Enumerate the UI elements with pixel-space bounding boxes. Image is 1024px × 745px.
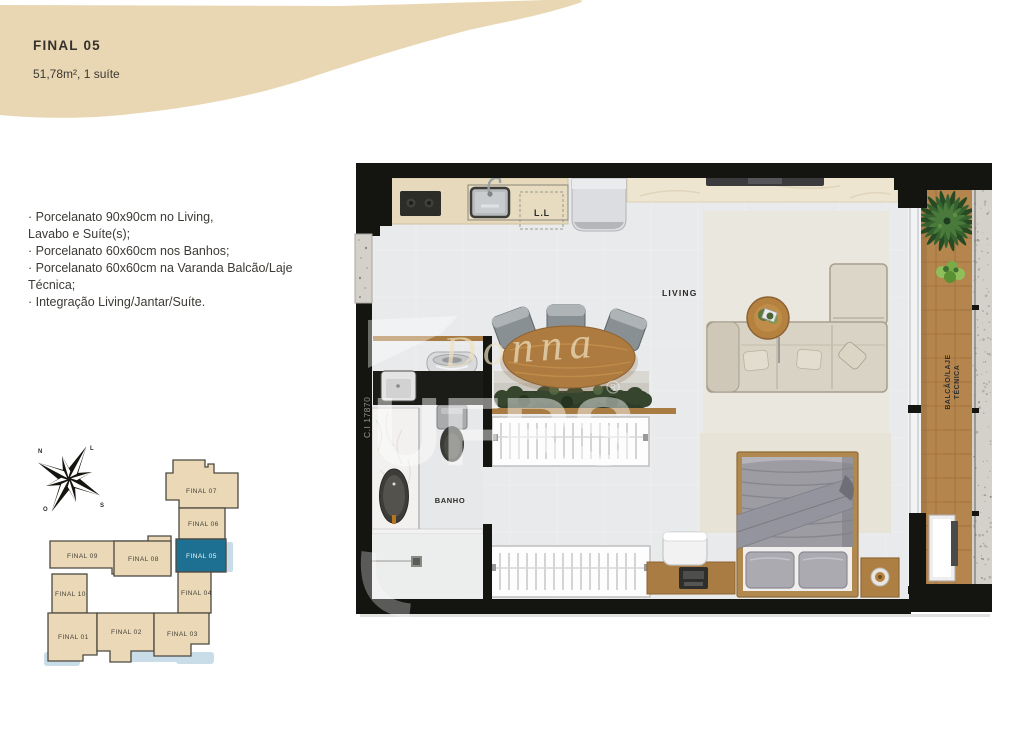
svg-text:FINAL 04: FINAL 04 bbox=[181, 590, 212, 597]
svg-text:FINAL 05: FINAL 05 bbox=[33, 38, 101, 53]
svg-text:FINAL 03: FINAL 03 bbox=[167, 631, 198, 638]
svg-text:L.L: L.L bbox=[534, 208, 550, 218]
svg-text:FINAL 09: FINAL 09 bbox=[67, 553, 98, 560]
svg-text:S: S bbox=[100, 503, 104, 509]
svg-text:FINAL 02: FINAL 02 bbox=[111, 629, 142, 636]
svg-text:O: O bbox=[43, 507, 48, 513]
svg-text:· Porcelanato 60x60cm na Varan: · Porcelanato 60x60cm na Varanda Balcão/… bbox=[28, 261, 293, 275]
svg-text:N: N bbox=[38, 449, 42, 455]
svg-text:BALCÃO/LAJE: BALCÃO/LAJE bbox=[943, 354, 952, 409]
svg-text:TÉCNICA: TÉCNICA bbox=[952, 365, 961, 400]
svg-text:R: R bbox=[610, 383, 616, 392]
svg-text:Lavabo e Suíte(s);: Lavabo e Suíte(s); bbox=[28, 227, 130, 241]
svg-text:· Porcelanato 90x90cm no Livin: · Porcelanato 90x90cm no Living, bbox=[28, 210, 214, 224]
svg-text:FINAL 01: FINAL 01 bbox=[58, 634, 89, 641]
svg-text:FINAL 07: FINAL 07 bbox=[186, 488, 217, 495]
svg-text:· Integração Living/Jantar/Suí: · Integração Living/Jantar/Suíte. bbox=[28, 295, 205, 309]
svg-text:FINAL 10: FINAL 10 bbox=[55, 591, 86, 598]
svg-text:· Porcelanato 60x60cm nos Banh: · Porcelanato 60x60cm nos Banhos; bbox=[28, 244, 230, 258]
svg-text:L: L bbox=[90, 446, 94, 452]
svg-text:BANHO: BANHO bbox=[435, 496, 466, 505]
svg-text:UFRS: UFRS bbox=[372, 377, 636, 486]
svg-text:Técnica;: Técnica; bbox=[28, 278, 75, 292]
svg-text:FINAL 08: FINAL 08 bbox=[128, 556, 159, 563]
svg-text:FINAL 05: FINAL 05 bbox=[186, 553, 217, 560]
svg-text:51,78m², 1 suíte: 51,78m², 1 suíte bbox=[33, 67, 120, 81]
svg-text:LIVING: LIVING bbox=[662, 288, 698, 298]
svg-text:C.I 17870: C.I 17870 bbox=[362, 397, 372, 438]
svg-text:FINAL 06: FINAL 06 bbox=[188, 521, 219, 528]
